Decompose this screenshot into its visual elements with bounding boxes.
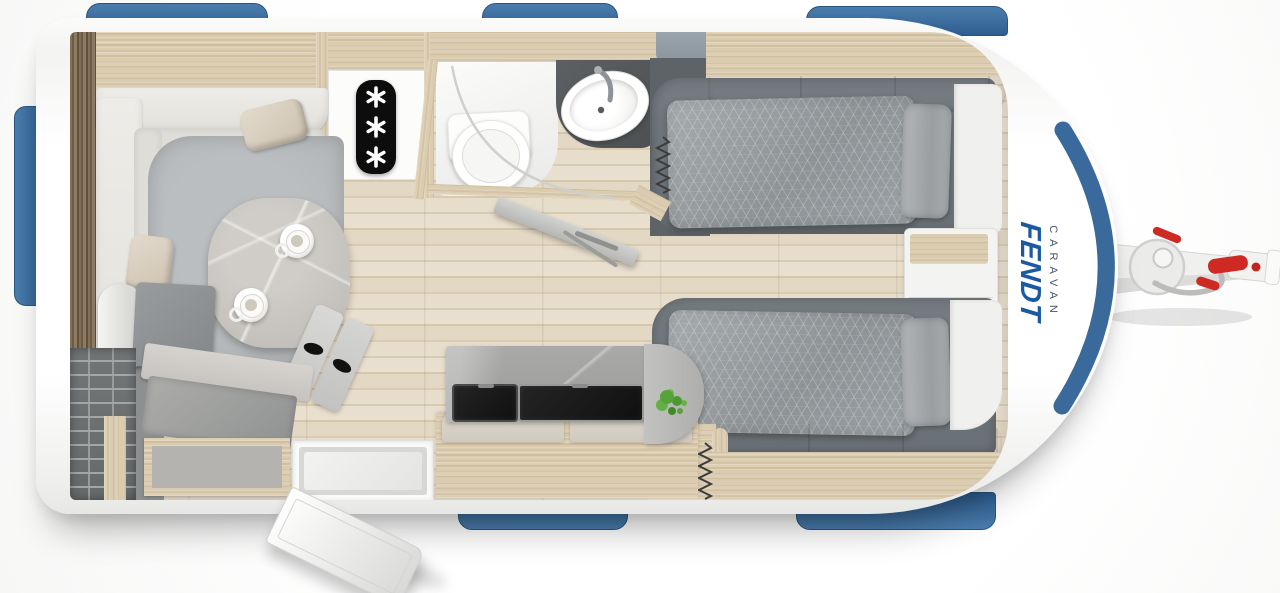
hob-cover: [452, 384, 518, 422]
freezer-icon: [356, 80, 396, 174]
nightstand-drawer: [910, 234, 988, 264]
brand-line-text: CARAVAN: [1047, 225, 1059, 319]
toilet: [452, 120, 530, 192]
lounge-overhead-cabinet: [96, 32, 322, 88]
plant-icon: [660, 390, 674, 404]
coupling-red-dot: [1252, 263, 1261, 272]
entry-step-tray: [292, 440, 434, 500]
bed-spring-icon: [696, 440, 714, 500]
brand-logo: CARAVAN FENDT: [1013, 207, 1059, 337]
wardrobe-wire-shelves: [70, 348, 136, 500]
bed-top-side-shelf: [954, 84, 1002, 234]
caravan-floorplan: CARAVAN FENDT: [0, 0, 1280, 593]
jockey-wheel-hub: [1154, 249, 1173, 268]
bench-storage-box: [144, 438, 290, 496]
fridge-top-cabinet: [328, 32, 428, 72]
bed-top-pillow: [900, 103, 952, 219]
bed-bottom-duvet: [667, 310, 917, 436]
bed-top-duvet: [667, 95, 918, 228]
wardrobe-side-panel: [104, 416, 126, 500]
coffee-cup-icon: [280, 224, 314, 258]
bed-bottom-pillow: [900, 317, 952, 427]
brand-name-text: FENDT: [1013, 221, 1046, 324]
interior-floor: [70, 32, 1008, 500]
hitch-shadow: [1108, 308, 1252, 326]
rear-wall-panel: [70, 32, 96, 348]
coffee-cup-icon: [234, 288, 268, 322]
bed-top-overhead-wood: [706, 32, 1006, 78]
bed-bottom-side-shelf: [950, 300, 1002, 430]
hob-handle: [478, 384, 494, 388]
bed-spring-icon: [654, 134, 672, 201]
sink-handle: [572, 384, 588, 388]
sink-cover: [518, 384, 644, 422]
